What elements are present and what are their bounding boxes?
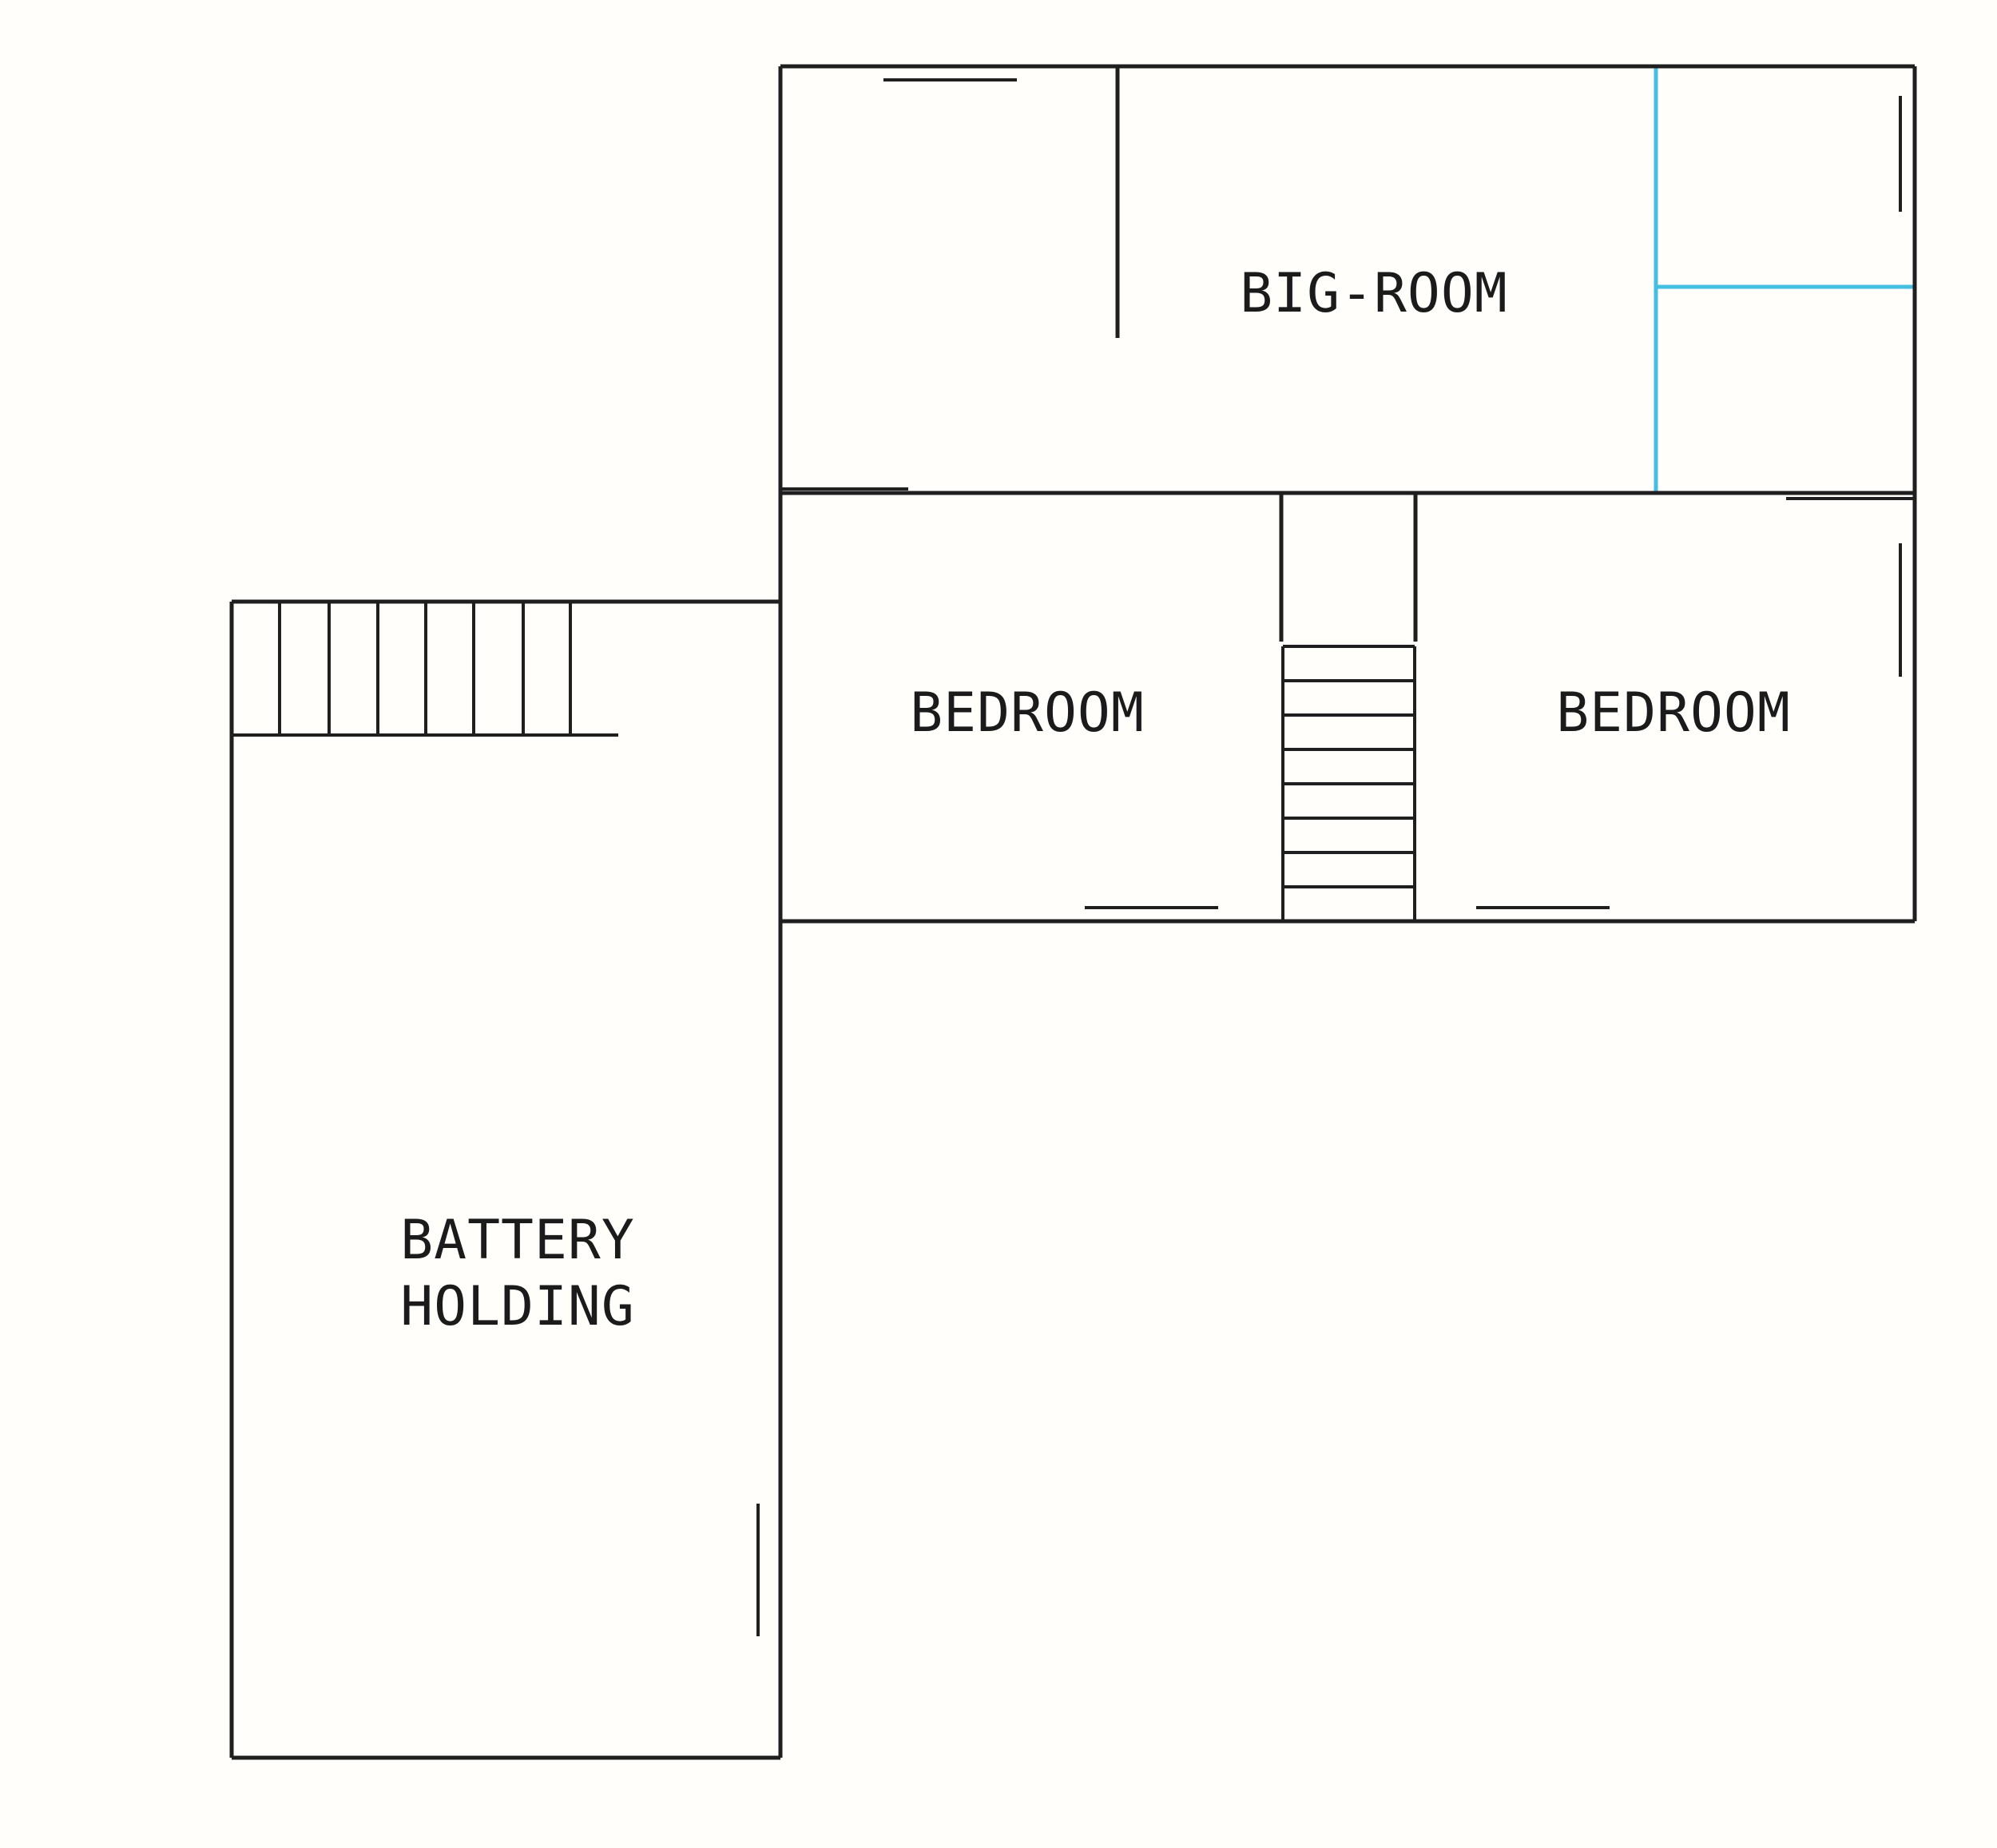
room-label-battery-holding-line1: BATTERY bbox=[400, 1209, 635, 1272]
room-label-big-room: BIG-ROOM bbox=[1240, 262, 1508, 325]
floor-plan: BIG-ROOM BEDROOM BEDROOM BATTERY HOLDING bbox=[0, 0, 1997, 1848]
room-label-bedroom-right: BEDROOM bbox=[1556, 682, 1791, 745]
utility-line-group bbox=[1656, 66, 1915, 493]
floorplan-svg: BIG-ROOM BEDROOM BEDROOM BATTERY HOLDING bbox=[0, 0, 1997, 1848]
wall-line-group bbox=[232, 66, 1915, 1758]
room-labels: BIG-ROOM BEDROOM BEDROOM BATTERY HOLDING bbox=[400, 262, 1791, 1338]
stair-tread-left-group bbox=[232, 602, 618, 735]
stair-tread-center-group bbox=[1283, 646, 1415, 921]
room-label-bedroom-left: BEDROOM bbox=[910, 682, 1145, 745]
room-label-battery-holding-line2: HOLDING bbox=[400, 1275, 635, 1338]
